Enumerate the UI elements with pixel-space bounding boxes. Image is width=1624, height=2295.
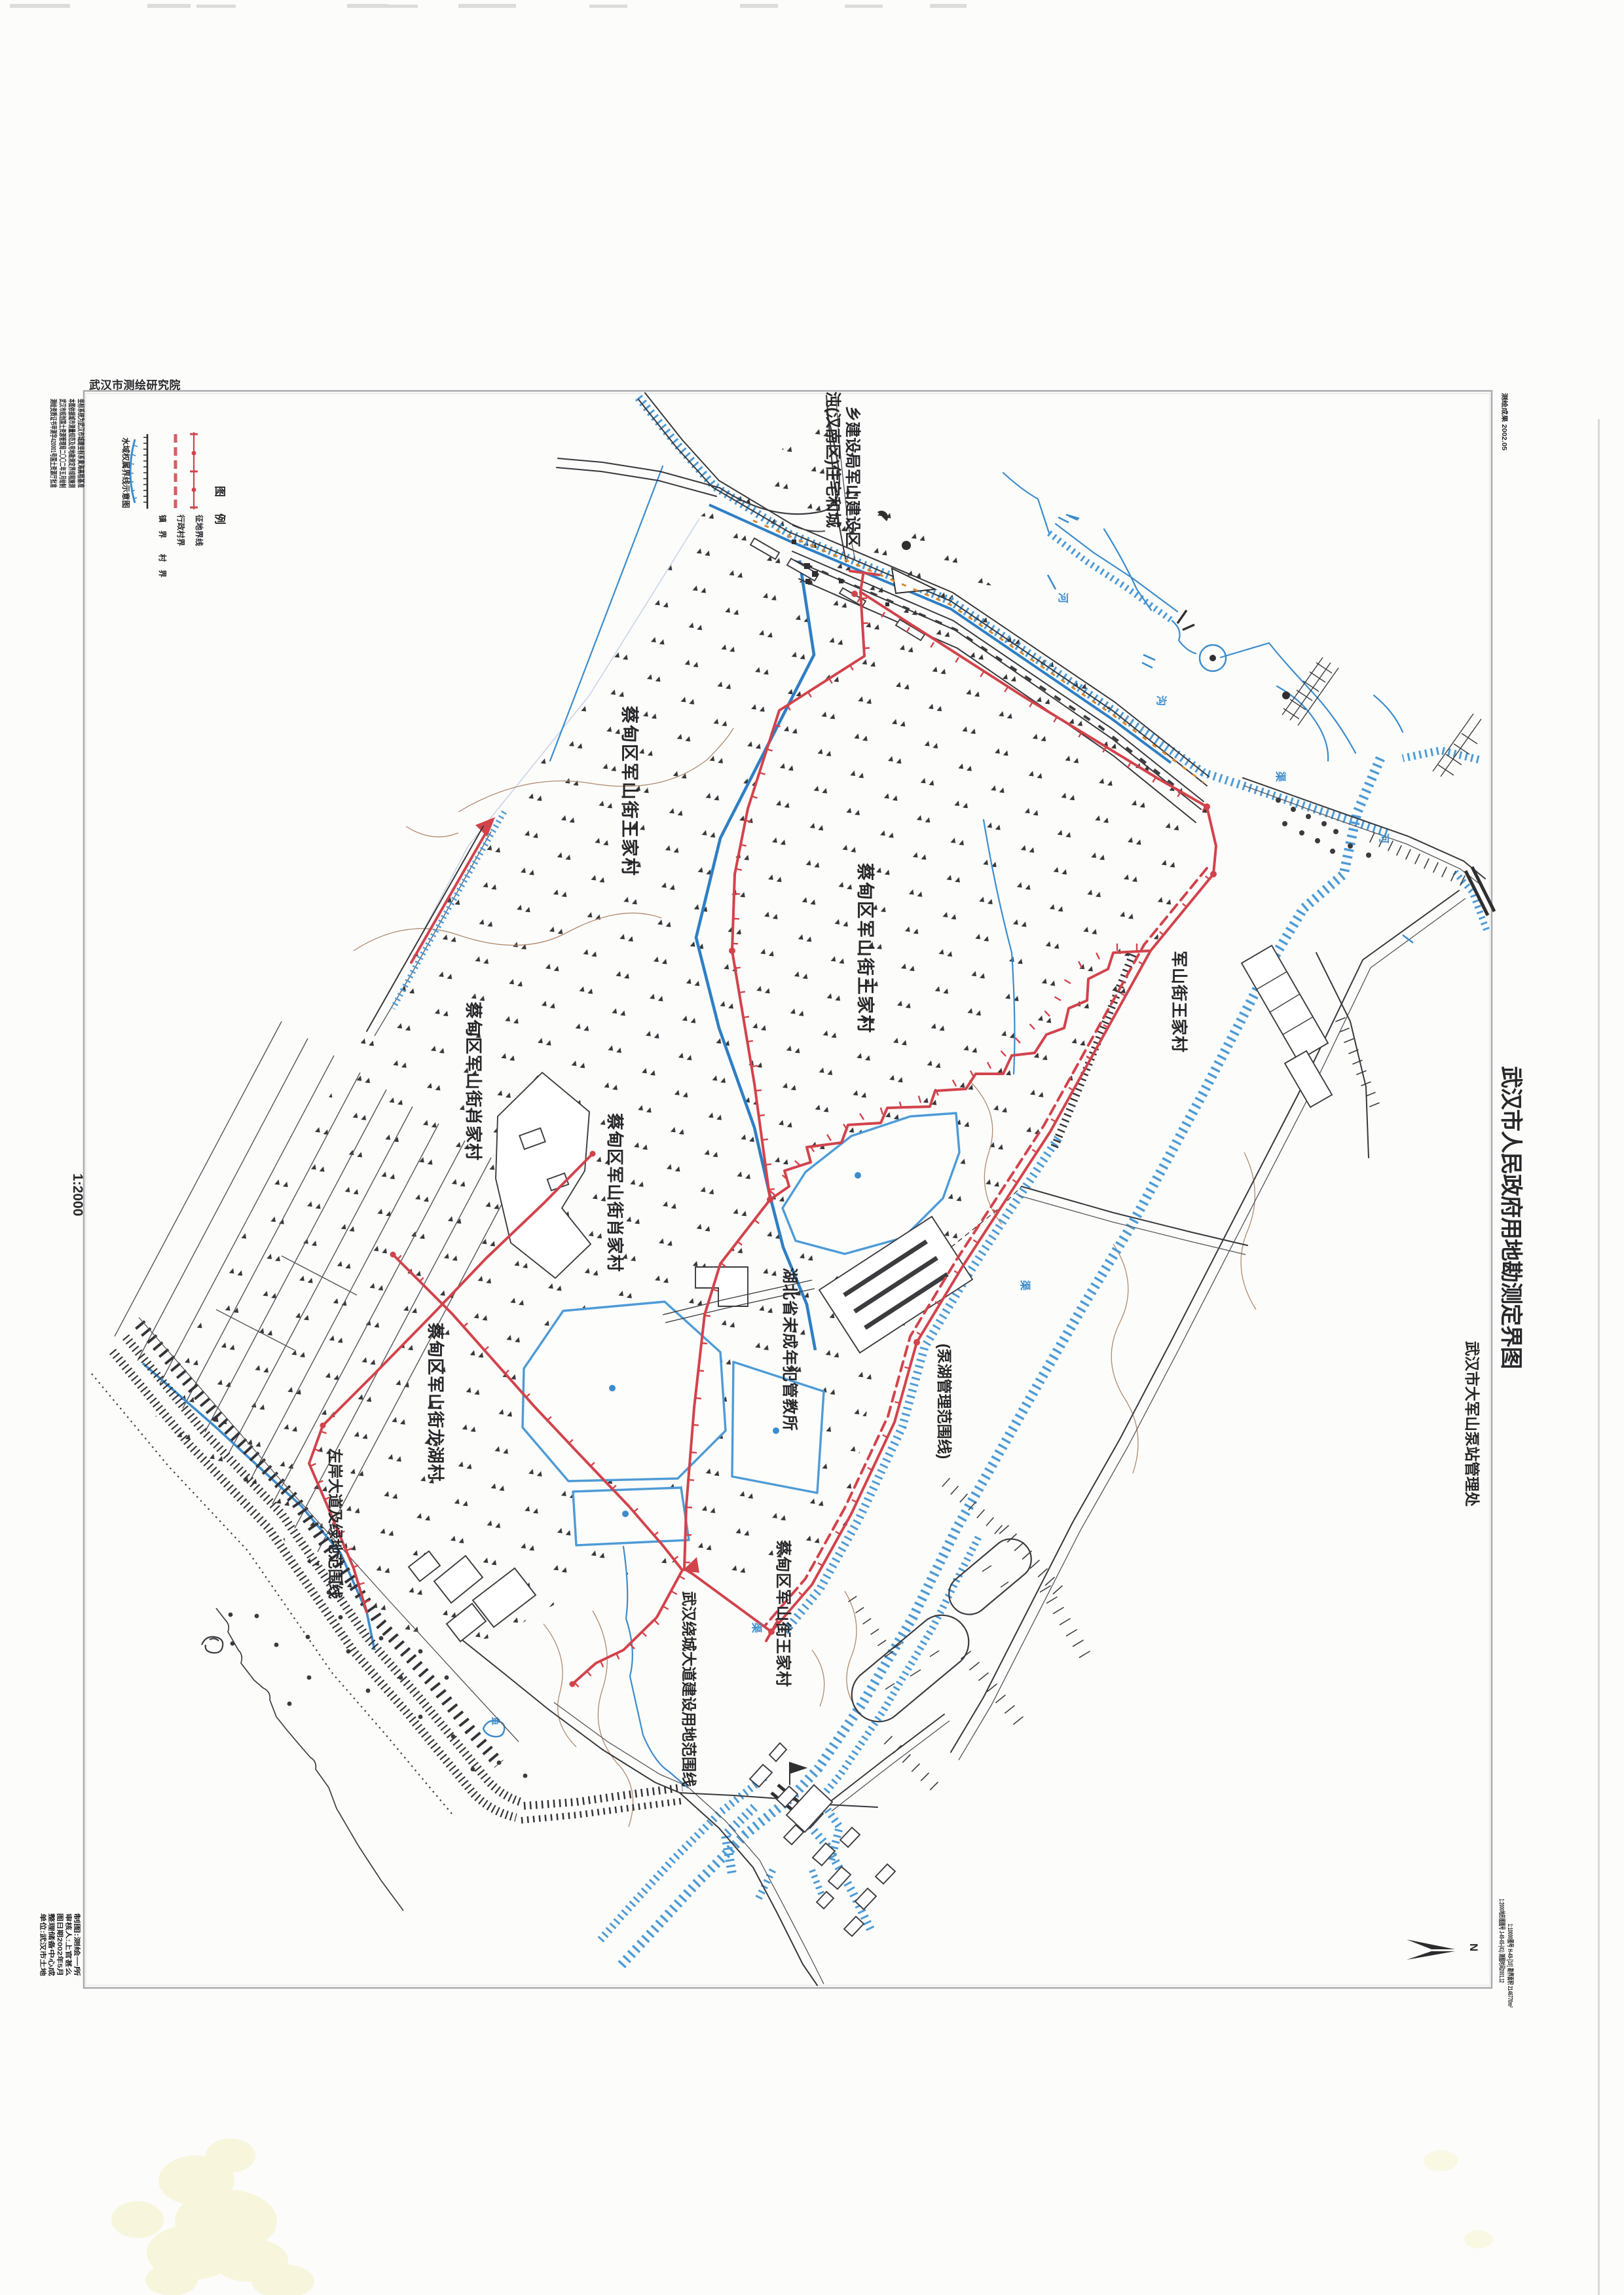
svg-text:蔡甸区军山街王家村: 蔡甸区军山街王家村	[855, 863, 876, 1034]
svg-text:审核人:上官甚么: 审核人:上官甚么	[64, 1913, 73, 1976]
svg-text:1:2000: 1:2000	[70, 1173, 85, 1216]
svg-text:单位:武汉市土地: 单位:武汉市土地	[39, 1913, 47, 1976]
svg-text:村 界: 村 界	[158, 554, 168, 578]
svg-text:左岸大道及绿地范围线: 左岸大道及绿地范围线	[327, 1448, 344, 1599]
svg-text:武汉市人民政府用地勘测定界图: 武汉市人民政府用地勘测定界图	[1498, 1066, 1524, 1368]
svg-text:军山街王家村: 军山街王家村	[1170, 951, 1189, 1053]
svg-text:渠: 渠	[1019, 1280, 1031, 1291]
svg-text:测绘资质证书甲测字420001号国土资源厅批准: 测绘资质证书甲测字420001号国土资源厅批准	[49, 399, 58, 488]
svg-text:水域权属界线示意图: 水域权属界线示意图	[121, 437, 131, 508]
svg-text:渠: 渠	[750, 1623, 763, 1634]
svg-text:本图依据城市测量规范及用地勘测定界规程施测: 本图依据城市测量规范及用地勘测定界规程施测	[67, 399, 77, 488]
svg-text:河: 河	[1378, 833, 1390, 843]
svg-text:蔡甸区军山街龙湖村: 蔡甸区军山街龙湖村	[426, 1323, 445, 1482]
svg-text:沌(汉南区)住宅和城: 沌(汉南区)住宅和城	[824, 392, 842, 528]
svg-text:湖北省未成年犯管教所: 湖北省未成年犯管教所	[781, 1268, 799, 1431]
svg-text:镇 界: 镇 界	[158, 515, 168, 538]
svg-text:武汉市规划国土资源管理局二〇〇二年五月绘制: 武汉市规划国土资源管理局二〇〇二年五月绘制	[58, 399, 67, 488]
svg-text:蔡甸区军山街肖家村: 蔡甸区军山街肖家村	[464, 1002, 483, 1161]
svg-text:武汉市测绘研究院: 武汉市测绘研究院	[89, 378, 181, 392]
svg-text:1:2000地形图图号 J-49-65-(41) 测图时间2: 1:2000地形图图号 J-49-65-(41) 测图时间2001.12	[1498, 1899, 1506, 1983]
svg-text:(泵湖管理范围线): (泵湖管理范围线)	[936, 1344, 953, 1459]
svg-text:蔡甸区军山街肖家村: 蔡甸区军山街肖家村	[605, 1113, 625, 1272]
svg-text:行政村界: 行政村界	[176, 514, 186, 546]
svg-text:图日期2002年5月: 图日期2002年5月	[56, 1913, 64, 1976]
svg-text:坐标系统为武汉市城建坐标系黄海高程基准: 坐标系统为武汉市城建坐标系黄海高程基准	[77, 399, 86, 488]
svg-text:河: 河	[1057, 593, 1069, 603]
svg-text:1:10000图号 H-49-[10] 勘界面积 21467: 1:10000图号 H-49-[10] 勘界面积 2146770m²	[1506, 1924, 1515, 2008]
svg-text:蔡甸区军山街王家村: 蔡甸区军山街王家村	[619, 706, 640, 877]
svg-text:蔡甸区军山街王家村: 蔡甸区军山街王家村	[774, 1540, 792, 1687]
svg-text:武汉市大军山泵站管理处: 武汉市大军山泵站管理处	[1464, 1341, 1481, 1507]
svg-text:渠: 渠	[1274, 771, 1287, 782]
svg-text:沟: 沟	[1155, 695, 1168, 706]
svg-text:整理储备中心成: 整理储备中心成	[47, 1913, 56, 1976]
svg-text:N: N	[1467, 1943, 1480, 1951]
svg-text:测绘成果 2002.05: 测绘成果 2002.05	[1500, 393, 1509, 450]
svg-text:征地界线: 征地界线	[194, 515, 204, 546]
svg-text:鱼: 鱼	[490, 1717, 500, 1725]
svg-text:图 例: 图 例	[213, 486, 227, 527]
svg-text:制图:测绘一所: 制图:测绘一所	[73, 1913, 81, 1976]
svg-text:乡建设局军山建设区: 乡建设局军山建设区	[843, 406, 861, 547]
svg-text:武汉绕城大道建设用地范围线: 武汉绕城大道建设用地范围线	[680, 1591, 697, 1787]
